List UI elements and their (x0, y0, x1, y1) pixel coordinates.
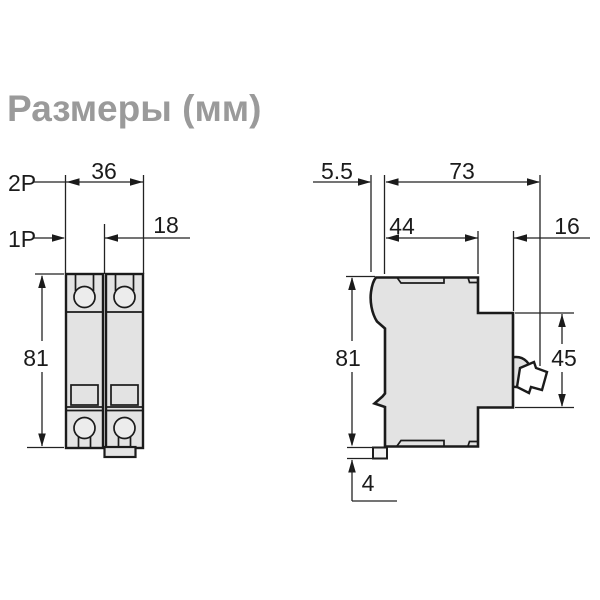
dim-16-label: 16 (554, 213, 580, 239)
arrowhead (558, 394, 566, 407)
front-view: 36 2P 18 1P 81 (8, 158, 190, 457)
dim-73-label: 73 (449, 158, 475, 184)
arrowhead (52, 234, 65, 242)
dim-16-group: 16 (514, 213, 591, 311)
breaker-pole-left (66, 274, 103, 448)
dim-81-side-label: 81 (335, 345, 361, 371)
dim-18-group: 18 1P (8, 212, 190, 274)
dim-36-label: 36 (91, 158, 117, 184)
dimension-drawing-page: Размеры (мм) (0, 0, 600, 600)
dim-44-group: 44 (386, 213, 478, 274)
arrowhead (105, 234, 118, 242)
dim-4-group: 4 (347, 459, 397, 502)
dim-81-front-group: 81 (23, 274, 64, 448)
side-view: 5.5 73 44 (313, 158, 590, 501)
terminal-top-icon (74, 287, 95, 308)
pole-1p-label: 1P (8, 226, 36, 252)
arrowhead (514, 234, 527, 242)
dim-5-5-label: 5.5 (321, 158, 353, 184)
arrowhead (130, 178, 143, 186)
dim-44-label: 44 (389, 213, 415, 239)
din-clip-tab (105, 447, 136, 457)
arrowhead (67, 178, 80, 186)
arrowhead (358, 178, 371, 186)
arrowhead (38, 275, 46, 288)
arrowhead (38, 434, 46, 447)
terminal-bottom-icon (114, 418, 135, 439)
arrowhead (348, 277, 356, 290)
technical-drawing: 36 2P 18 1P 81 (0, 0, 600, 600)
pole-2p-label: 2P (8, 170, 36, 196)
breaker-profile (371, 278, 513, 447)
arrowhead (465, 234, 478, 242)
arrowhead (527, 178, 540, 186)
arrowhead (348, 434, 356, 447)
dim-4-label: 4 (362, 470, 375, 496)
dim-45-label: 45 (551, 345, 577, 371)
terminal-bottom-icon (74, 418, 95, 439)
mounting-foot (373, 448, 387, 459)
arrowhead (386, 178, 399, 186)
dim-36-group: 36 2P (8, 158, 144, 274)
toggle-handle (517, 362, 547, 393)
dim-18-label: 18 (153, 212, 179, 238)
arrowhead (558, 314, 566, 327)
terminal-top-icon (114, 287, 135, 308)
dim-5-5-group: 5.5 (313, 158, 371, 272)
breaker-pole-right (106, 274, 143, 448)
dim-81-front-label: 81 (23, 345, 49, 371)
